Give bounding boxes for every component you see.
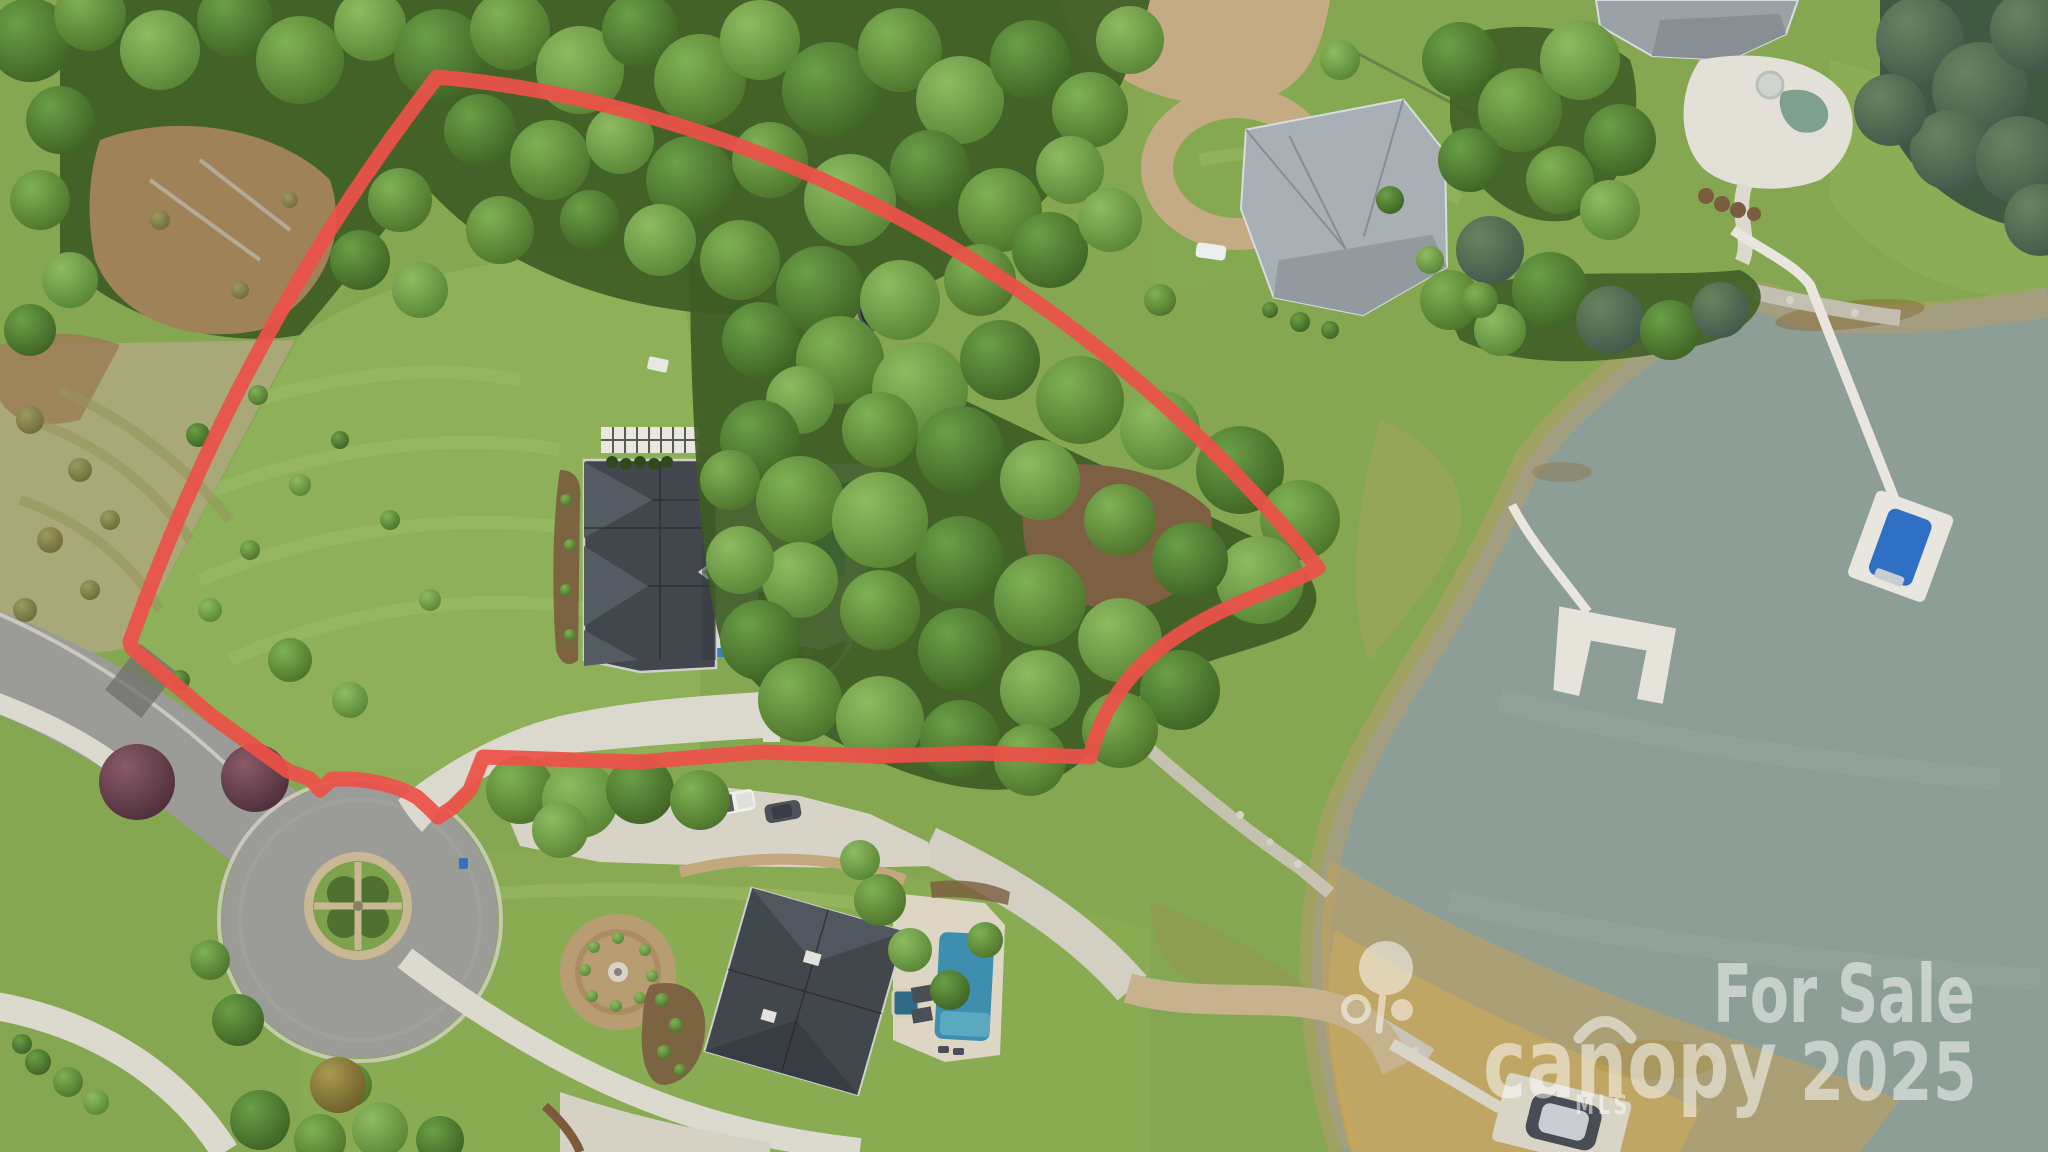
aerial-photo: For Sale 2025 canopy MLS [0, 0, 2048, 1152]
brand-sub-watermark: MLS [1575, 1090, 1631, 1121]
aerial-photo-canvas: For Sale 2025 canopy MLS [0, 0, 2048, 1152]
center-island [304, 852, 412, 960]
year-watermark: 2025 [1800, 1026, 1977, 1119]
spa-round [1757, 72, 1783, 98]
orange-tree [310, 1057, 366, 1113]
trash-bin [459, 858, 468, 869]
main-house [584, 460, 716, 672]
algae-patch [1532, 462, 1592, 482]
trellis-pergola [601, 427, 699, 453]
winding-path [1742, 185, 1746, 262]
